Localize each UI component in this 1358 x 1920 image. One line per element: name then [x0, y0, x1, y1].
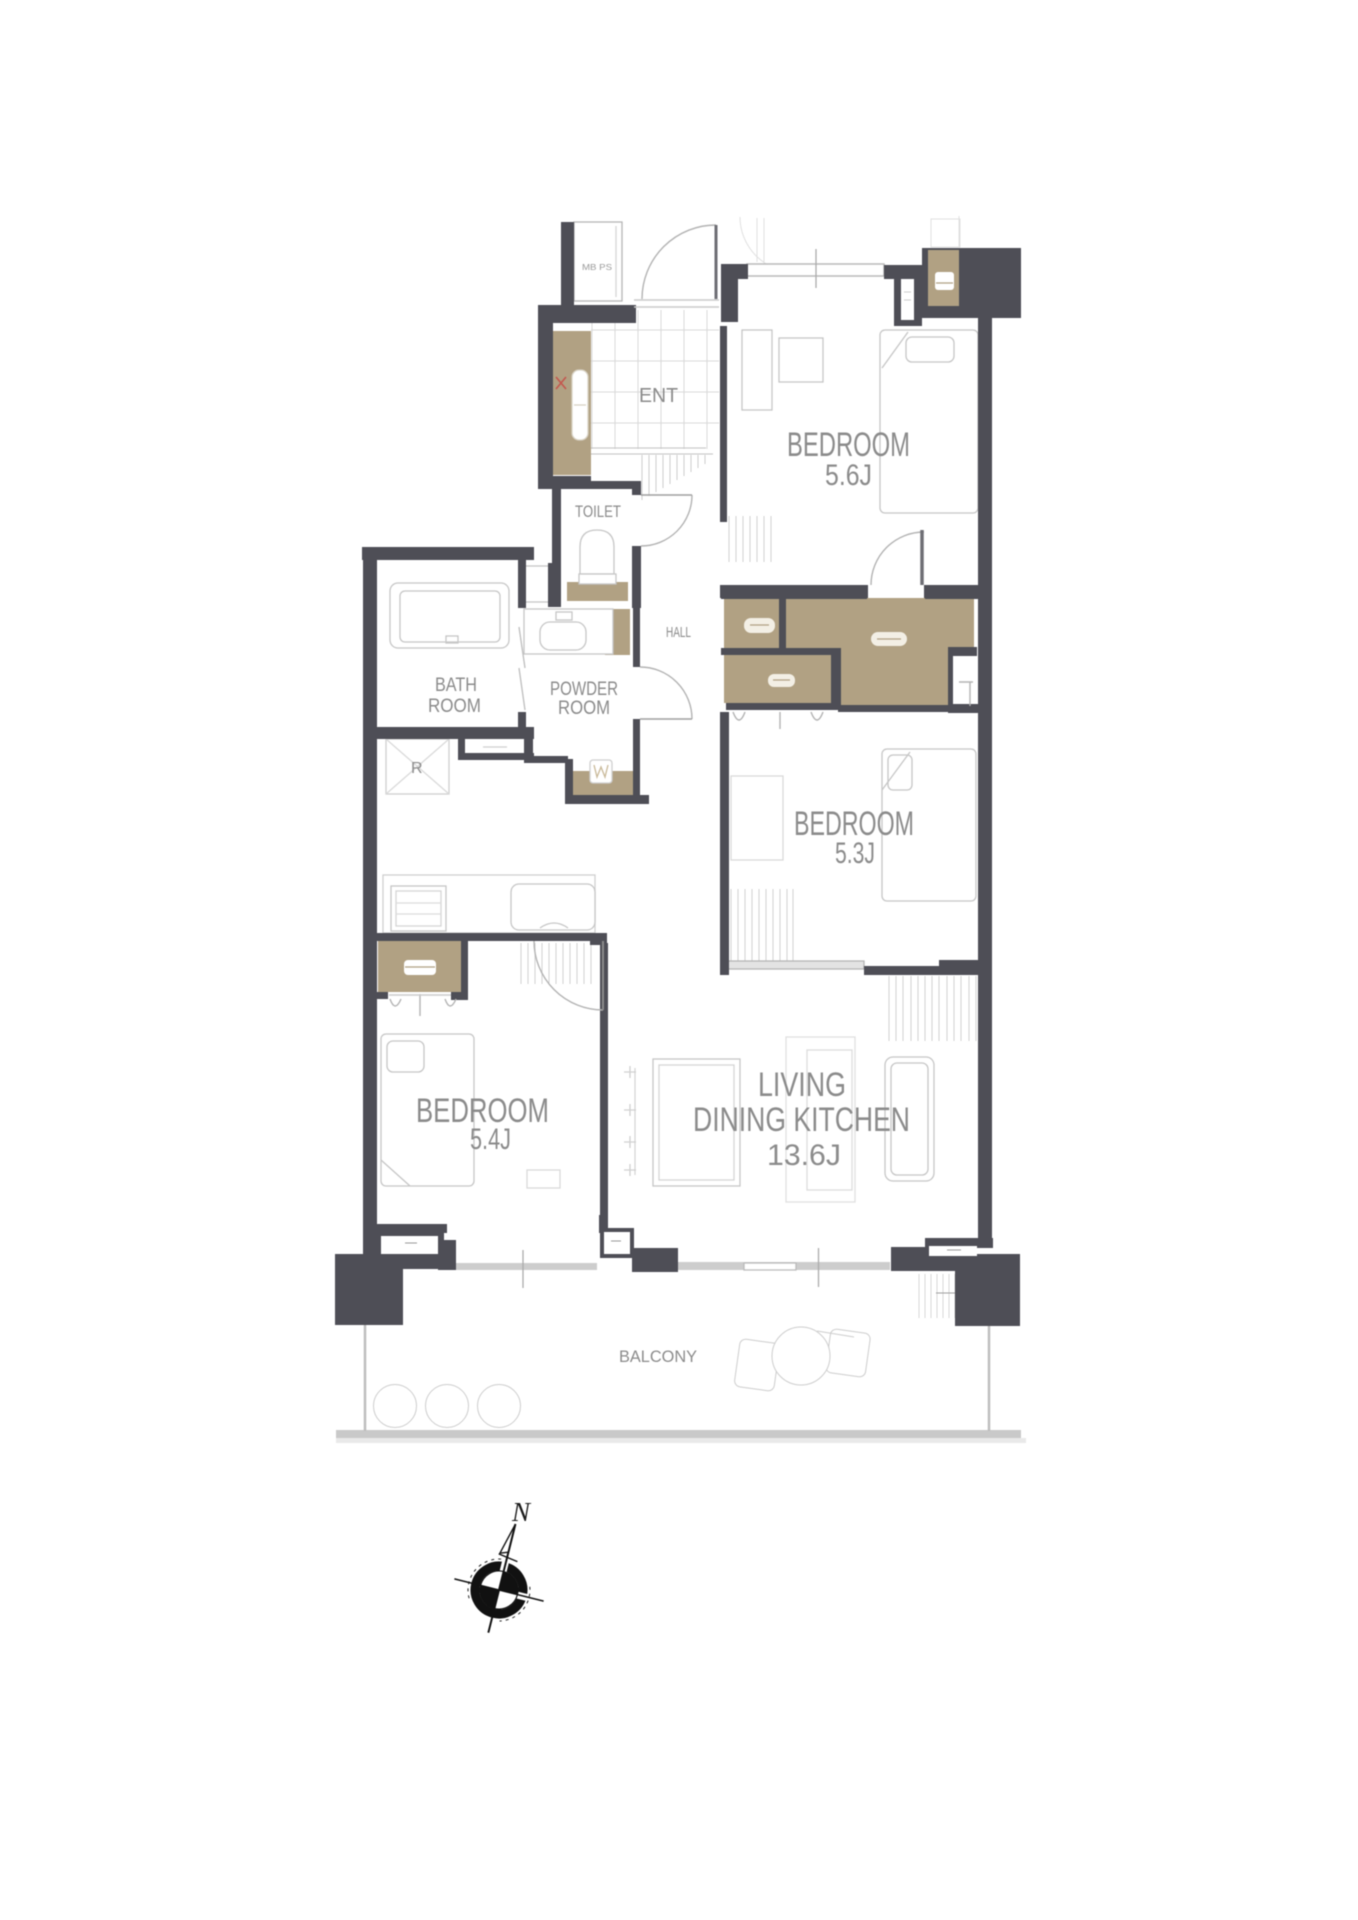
- svg-text:BALCONY: BALCONY: [619, 1347, 697, 1366]
- svg-text:TOILET: TOILET: [575, 502, 621, 521]
- svg-text:R: R: [411, 760, 423, 777]
- svg-text:ENT: ENT: [639, 385, 678, 407]
- svg-text:5.6J: 5.6J: [825, 459, 872, 492]
- svg-text:N: N: [511, 1497, 532, 1527]
- svg-text:5.4J: 5.4J: [470, 1123, 511, 1156]
- svg-text:DINING KITCHEN: DINING KITCHEN: [693, 1101, 910, 1139]
- svg-text:ROOM: ROOM: [558, 698, 610, 719]
- svg-text:HALL: HALL: [666, 624, 691, 641]
- svg-text:MB PS: MB PS: [582, 262, 612, 272]
- svg-text:BATH: BATH: [435, 675, 477, 696]
- svg-text:ROOM: ROOM: [428, 696, 481, 717]
- svg-text:5.3J: 5.3J: [835, 837, 875, 870]
- svg-text:13.6J: 13.6J: [767, 1139, 841, 1172]
- svg-text:LIVING: LIVING: [758, 1066, 846, 1104]
- svg-text:POWDER: POWDER: [550, 679, 618, 700]
